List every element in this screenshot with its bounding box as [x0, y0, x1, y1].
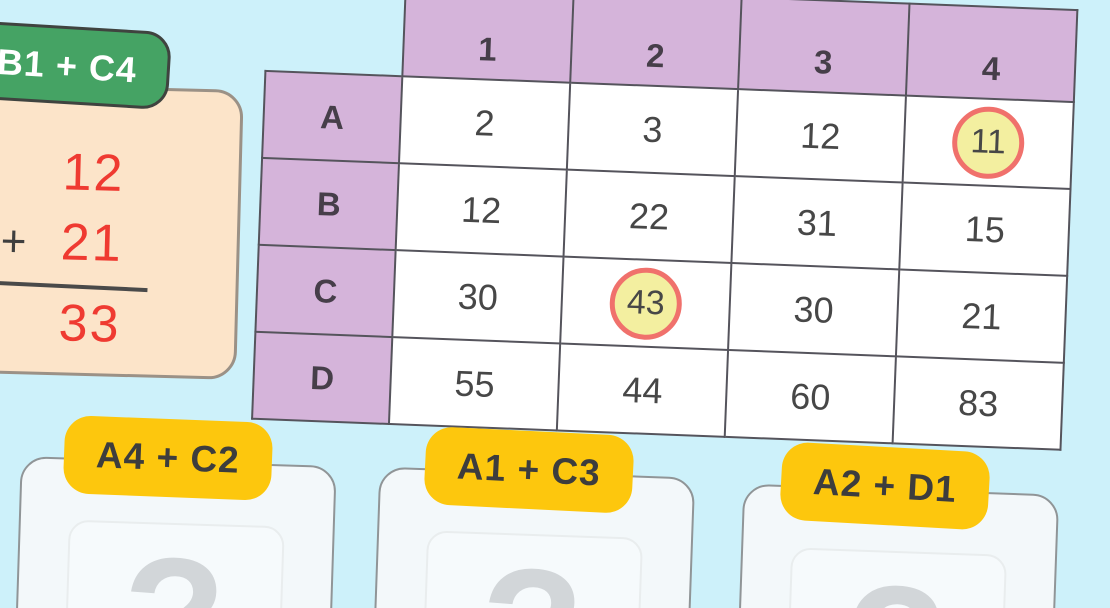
question-badge-2[interactable]: A1 + C3	[423, 426, 634, 514]
cell-A1: 2	[399, 76, 570, 169]
example-operand-top: 12	[2, 145, 125, 201]
cell-A2: 3	[567, 83, 738, 176]
highlight-circle-C2: 43	[608, 266, 683, 341]
cell-B3: 31	[731, 176, 902, 269]
cell-B4: 15	[899, 183, 1070, 276]
row-header-D: D	[252, 332, 392, 424]
plus-sign: +	[0, 217, 27, 268]
question-mark-3: ?	[787, 557, 1005, 608]
example-result: 33	[0, 296, 121, 352]
highlight-circle-A4: 11	[951, 105, 1026, 180]
answer-slot-2[interactable]: ?	[419, 530, 643, 608]
cell-C4: 21	[896, 269, 1067, 362]
col-header-2: 2	[570, 0, 741, 89]
answer-slot-1[interactable]: ?	[62, 520, 285, 608]
question-mark-2: ?	[423, 540, 641, 608]
col-header-1: 1	[402, 0, 573, 83]
sum-line	[0, 281, 148, 292]
cell-C2: 43	[560, 257, 731, 350]
example-question-badge: B1 + C4	[0, 20, 172, 111]
example-card: 12 + 21 33	[0, 82, 244, 380]
math-grid-game-scene: 12 + 21 33 B1 + C4 1 2 3 4 A 2	[0, 0, 1110, 608]
cell-C3: 30	[728, 263, 899, 356]
cell-B2: 22	[564, 170, 735, 263]
answer-slot-3[interactable]: ?	[783, 547, 1007, 608]
cell-A3: 12	[735, 89, 906, 182]
row-header-A: A	[262, 71, 402, 163]
question-mark-1: ?	[65, 530, 282, 608]
col-header-3: 3	[738, 0, 909, 96]
example-sum: 12 + 21 33	[0, 145, 125, 352]
cell-D4: 83	[893, 356, 1064, 449]
cell-D2: 44	[557, 343, 728, 436]
cell-B1: 12	[396, 163, 567, 256]
cell-A4-value: 11	[970, 122, 1007, 162]
cell-A4: 11	[903, 96, 1074, 189]
cell-D3: 60	[725, 350, 896, 443]
cell-C2-value: 43	[626, 283, 665, 323]
question-badge-1[interactable]: A4 + C2	[63, 415, 274, 501]
grid-corner-cell	[265, 0, 405, 76]
row-header-B: B	[259, 158, 399, 250]
question-badge-3[interactable]: A2 + D1	[779, 441, 991, 530]
col-header-4: 4	[906, 4, 1077, 102]
cell-C1: 30	[392, 250, 563, 343]
number-grid: 1 2 3 4 A 2 3 12 11 B	[251, 0, 1078, 451]
row-header-C: C	[255, 245, 395, 337]
cell-D1: 55	[389, 337, 560, 430]
